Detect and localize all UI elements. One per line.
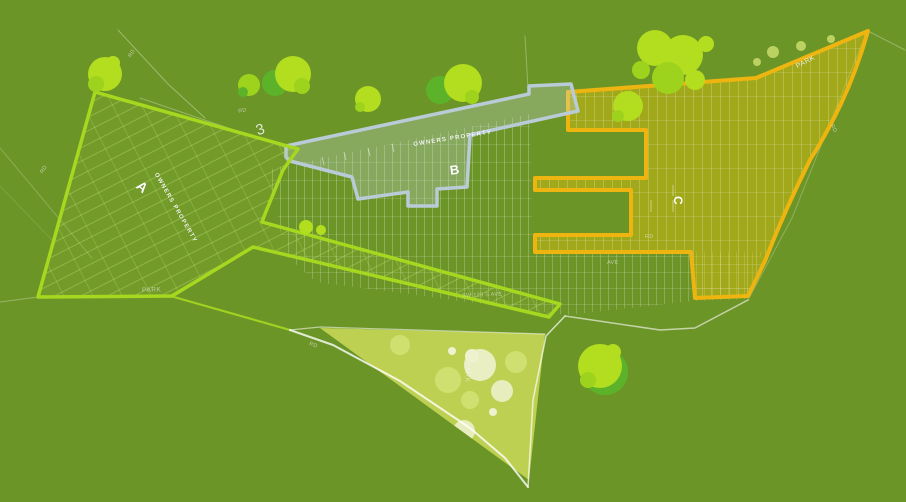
site-plan-drawing (0, 0, 906, 502)
zone-b-label: B (449, 163, 461, 177)
tree (578, 344, 628, 395)
park-west-label: PARK (142, 287, 161, 294)
road-label: RD (645, 235, 654, 241)
park-south-label: PARK (463, 362, 471, 383)
tree (355, 86, 381, 112)
zone-c-label: C (672, 196, 684, 205)
site-plan-map: A OWNERS PROPERTY OWNERS PROPERTY B C 3 … (0, 0, 906, 502)
road-label: AVE (607, 261, 619, 267)
